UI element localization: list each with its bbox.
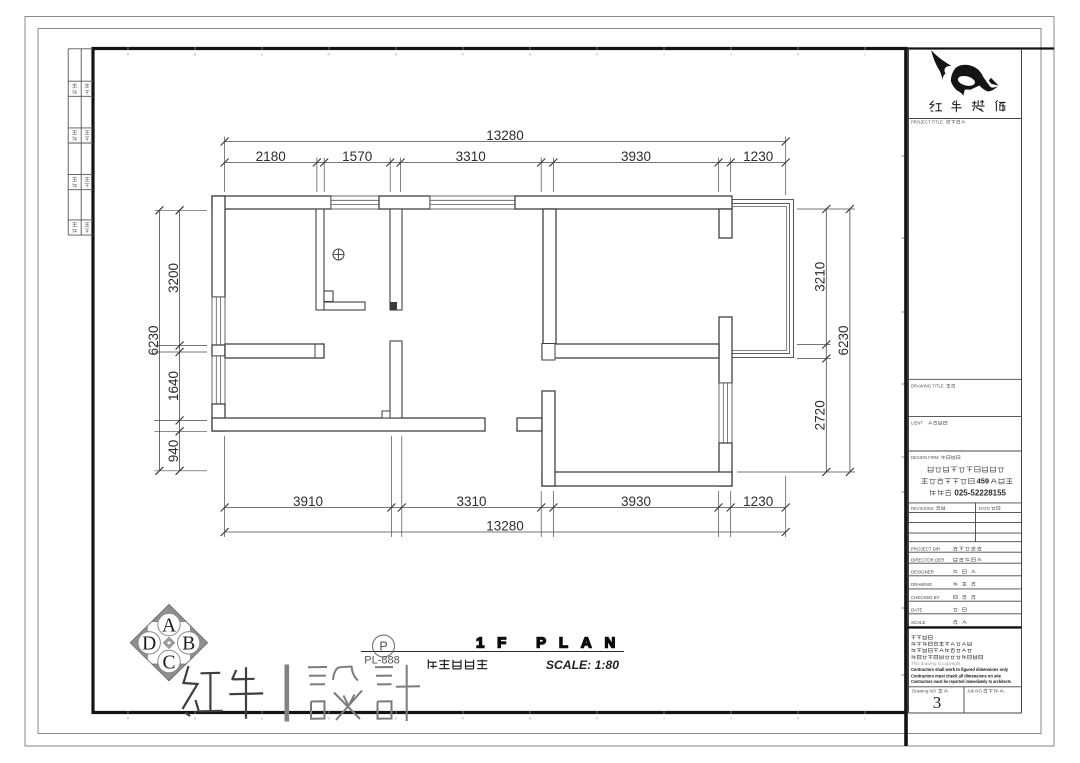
svg-text:1640: 1640 xyxy=(166,371,181,401)
svg-text:DATE: DATE xyxy=(911,607,922,612)
svg-text:3310: 3310 xyxy=(456,494,486,509)
svg-text:H: H xyxy=(596,716,599,721)
svg-text:13280: 13280 xyxy=(486,519,524,534)
svg-text:2180: 2180 xyxy=(256,149,286,164)
svg-text:LIENT: LIENT xyxy=(911,421,923,426)
svg-text:I: I xyxy=(663,52,664,57)
svg-text:G: G xyxy=(528,716,531,721)
svg-text:13280: 13280 xyxy=(486,128,524,143)
svg-text:2720: 2720 xyxy=(813,400,828,430)
svg-text:3: 3 xyxy=(933,693,942,712)
svg-text:Contractors must check all dim: Contractors must check all dimensions on… xyxy=(911,673,1001,678)
svg-text:3210: 3210 xyxy=(813,262,828,292)
svg-text:C: C xyxy=(261,716,264,721)
svg-text:DESIGN FIRM: DESIGN FIRM xyxy=(911,455,939,460)
svg-text:DESIGNER: DESIGNER xyxy=(911,569,934,574)
svg-text:H: H xyxy=(596,52,599,57)
svg-text:This drawing is copyright: This drawing is copyright xyxy=(911,661,961,666)
svg-text:PROJECT DIR: PROJECT DIR xyxy=(911,546,940,551)
svg-text:Job NO: Job NO xyxy=(967,689,982,694)
svg-text:E: E xyxy=(395,52,398,57)
svg-text:I: I xyxy=(663,716,664,721)
svg-text:B: B xyxy=(182,634,195,655)
svg-text:CHECKED BY: CHECKED BY xyxy=(911,595,940,600)
svg-text:SCALE: SCALE xyxy=(911,620,925,625)
svg-text:D: D xyxy=(328,52,331,57)
svg-text:3200: 3200 xyxy=(166,263,181,293)
svg-text:1230: 1230 xyxy=(743,494,773,509)
svg-text:B: B xyxy=(194,716,197,721)
svg-text:1230: 1230 xyxy=(743,149,773,164)
svg-text:P: P xyxy=(379,640,387,654)
svg-text:REVISIONS: REVISIONS xyxy=(911,506,934,511)
svg-text:A: A xyxy=(127,716,130,721)
svg-text:3910: 3910 xyxy=(293,494,323,509)
svg-text:6230: 6230 xyxy=(836,325,851,355)
svg-text:940: 940 xyxy=(166,440,181,463)
svg-text:B: B xyxy=(194,52,197,57)
svg-text:DRAWING: DRAWING xyxy=(911,582,933,587)
svg-text:DATE: DATE xyxy=(979,506,990,511)
svg-text:K: K xyxy=(797,716,800,721)
svg-text:1F PLAN: 1F PLAN xyxy=(476,635,628,652)
svg-text:1570: 1570 xyxy=(342,149,372,164)
svg-text:A: A xyxy=(127,52,130,57)
svg-text:Contractors must be reported i: Contractors must be reported immediately… xyxy=(911,679,1011,684)
svg-text:PROJECT TITLE: PROJECT TITLE xyxy=(911,120,943,125)
svg-text:3930: 3930 xyxy=(621,149,651,164)
svg-text:SCALE: 1:80: SCALE: 1:80 xyxy=(546,658,619,672)
svg-text:J: J xyxy=(730,716,732,721)
svg-text:DRAWING TITLE: DRAWING TITLE xyxy=(911,384,944,389)
svg-text:G: G xyxy=(528,52,531,57)
svg-text:6230: 6230 xyxy=(146,325,161,355)
svg-text:Contractors shall work to figu: Contractors shall work to figured dimens… xyxy=(911,667,1008,672)
svg-text:A: A xyxy=(162,615,176,636)
svg-text:E: E xyxy=(395,716,398,721)
svg-text:459: 459 xyxy=(977,477,990,486)
svg-text:C: C xyxy=(162,652,175,673)
svg-text:DIRECTOR DER: DIRECTOR DER xyxy=(911,557,944,562)
svg-text:025-52228155: 025-52228155 xyxy=(954,488,1006,497)
svg-text:D: D xyxy=(142,634,156,655)
svg-text:D: D xyxy=(328,716,331,721)
svg-text:PL-888: PL-888 xyxy=(364,655,399,667)
svg-text:C: C xyxy=(261,52,264,57)
svg-text:J: J xyxy=(730,52,732,57)
svg-text:3310: 3310 xyxy=(456,149,486,164)
svg-text:K: K xyxy=(797,52,800,57)
svg-text:3930: 3930 xyxy=(621,494,651,509)
